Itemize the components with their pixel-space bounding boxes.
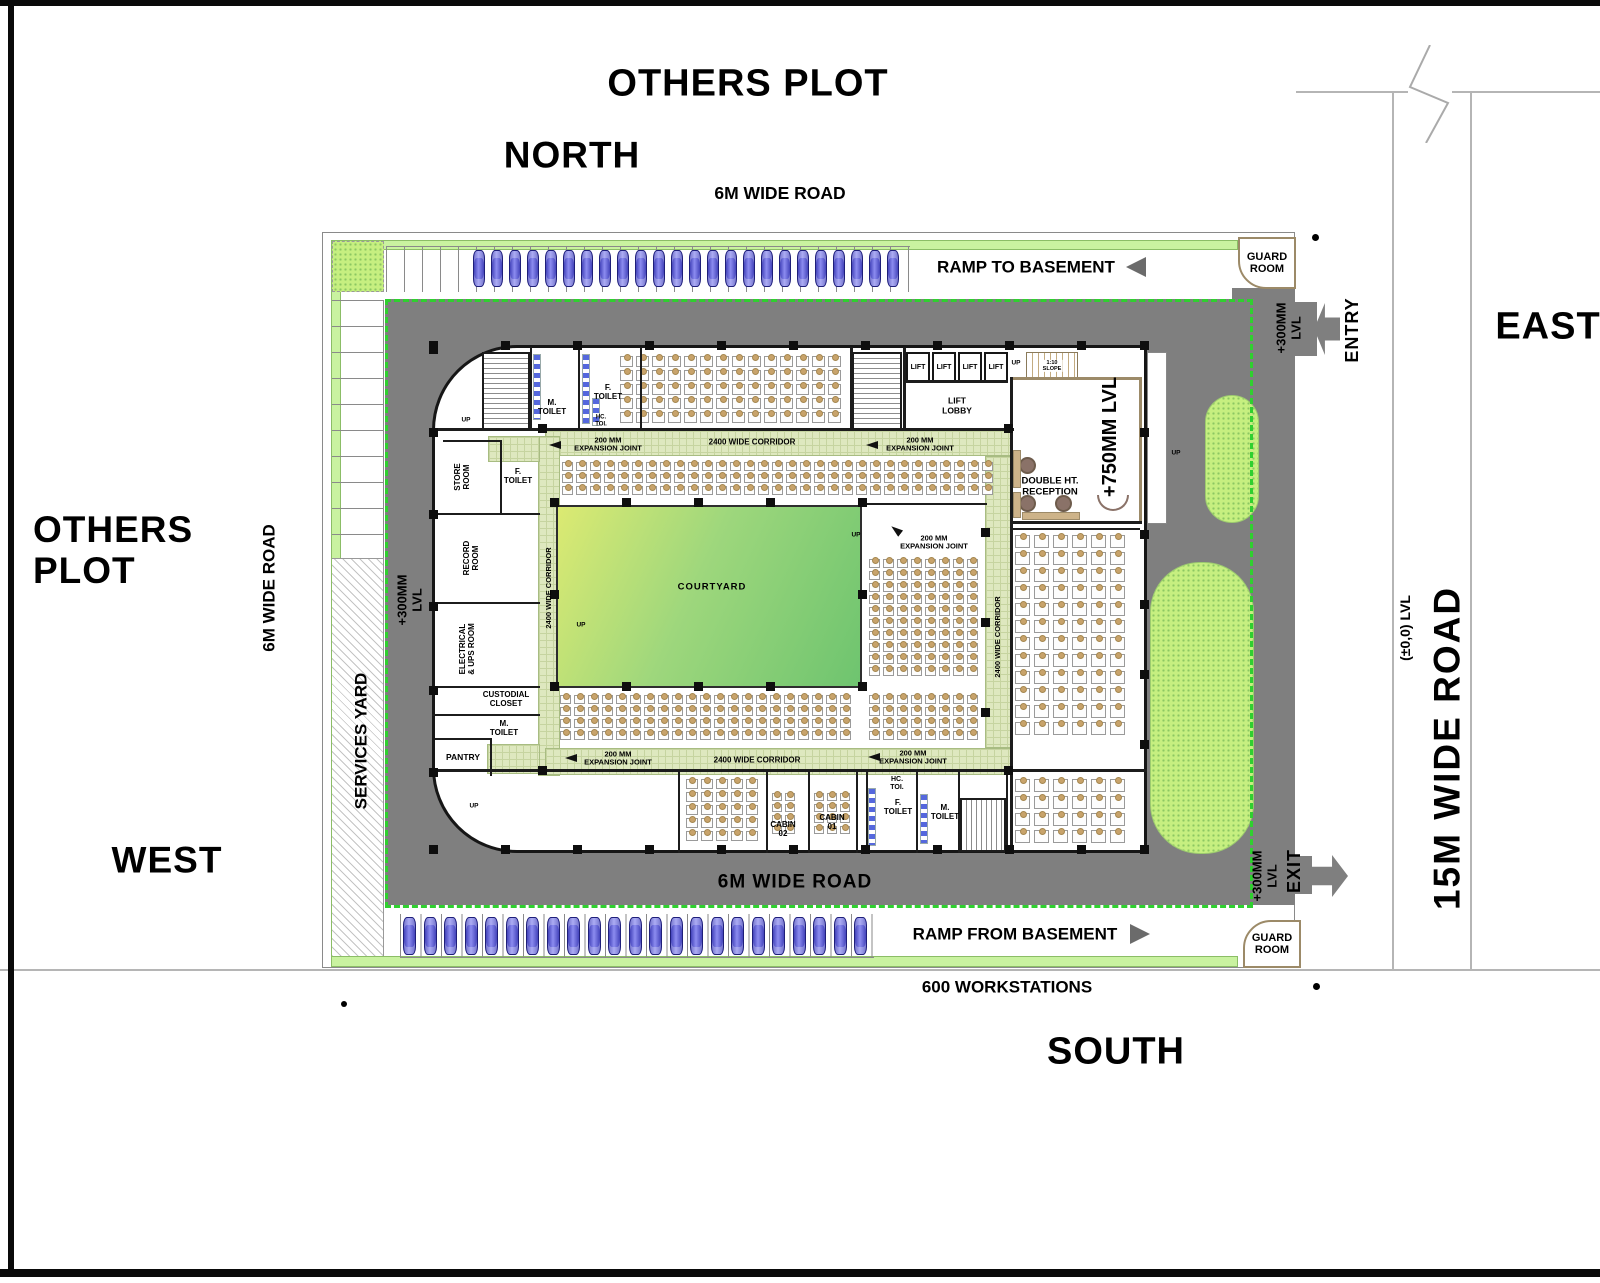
workstation-desk bbox=[636, 370, 649, 381]
workstation-desk bbox=[940, 486, 951, 495]
workstation-desk bbox=[731, 805, 743, 815]
workstation-desk bbox=[925, 667, 936, 676]
workstation-desk bbox=[870, 462, 881, 471]
column bbox=[861, 341, 870, 350]
workstation-desk bbox=[746, 792, 758, 802]
workstation-desk bbox=[883, 695, 894, 704]
workstation-desk bbox=[730, 462, 741, 471]
workstation-desk bbox=[731, 831, 743, 841]
expansion-joint-label-2: 200 MMEXPANSION JOINT bbox=[886, 437, 954, 454]
workstation-zone bbox=[1015, 776, 1143, 850]
workstation-desk bbox=[883, 631, 894, 640]
workstation-desk bbox=[953, 559, 964, 568]
staircase-core bbox=[852, 352, 902, 430]
workstation-desk bbox=[939, 667, 950, 676]
workstation-desk bbox=[939, 571, 950, 580]
workstation-desk bbox=[652, 356, 665, 367]
workstation-desk bbox=[967, 655, 978, 664]
workstation-desk bbox=[1091, 671, 1106, 684]
workstation-desk bbox=[672, 719, 683, 728]
parked-car bbox=[473, 250, 485, 287]
frame-top bbox=[0, 0, 1600, 6]
workstation-desk bbox=[686, 719, 697, 728]
plot-marker-dot-se bbox=[1313, 983, 1320, 990]
interior-wall bbox=[530, 347, 532, 429]
interior-wall bbox=[435, 738, 492, 740]
reception-label: DOUBLE HT.RECEPTION bbox=[1022, 476, 1079, 497]
workstation-desk bbox=[1053, 796, 1068, 809]
workstation-desk bbox=[658, 731, 669, 740]
workstation-desk bbox=[1015, 671, 1030, 684]
workstation-desk bbox=[674, 474, 685, 483]
workstation-desk bbox=[668, 370, 681, 381]
hc-toilet-north-label: HC.TOI. bbox=[595, 414, 607, 427]
workstation-desk bbox=[1072, 569, 1087, 582]
workstation-desk bbox=[968, 474, 979, 483]
f-toilet-south-label: F.TOILET bbox=[884, 799, 912, 817]
workstation-desk bbox=[742, 707, 753, 716]
workstation-desk bbox=[1053, 586, 1068, 599]
workstation-desk bbox=[953, 731, 964, 740]
workstation-desk bbox=[1110, 830, 1125, 843]
workstation-desk bbox=[716, 384, 729, 395]
workstation-desk bbox=[1110, 671, 1125, 684]
workstation-desk bbox=[869, 707, 880, 716]
workstation-desk bbox=[939, 731, 950, 740]
workstation-desk bbox=[800, 486, 811, 495]
workstation-desk bbox=[630, 731, 641, 740]
workstation-desk bbox=[780, 398, 793, 409]
column bbox=[550, 682, 559, 691]
up-mark-courtyard-east: UP bbox=[851, 531, 860, 538]
workstation-desk bbox=[686, 707, 697, 716]
workstation-desk bbox=[856, 486, 867, 495]
workstation-desk bbox=[684, 384, 697, 395]
workstation-desk bbox=[939, 719, 950, 728]
workstation-desk bbox=[636, 412, 649, 423]
workstation-desk bbox=[604, 474, 615, 483]
workstation-desk bbox=[814, 486, 825, 495]
workstation-desk bbox=[756, 731, 767, 740]
workstation-desk bbox=[1072, 603, 1087, 616]
workstation-desk bbox=[560, 719, 571, 728]
workstation-desk bbox=[714, 695, 725, 704]
workstation-desk bbox=[897, 643, 908, 652]
workstation-desk bbox=[869, 619, 880, 628]
workstation-desk bbox=[953, 571, 964, 580]
workstation-desk bbox=[702, 486, 713, 495]
workstation-desk bbox=[1053, 552, 1068, 565]
workstation-desk bbox=[814, 462, 825, 471]
workstation-desk bbox=[728, 707, 739, 716]
workstation-desk bbox=[731, 792, 743, 802]
column bbox=[1140, 341, 1149, 350]
workstation-desk bbox=[630, 707, 641, 716]
road-top-label: 6M WIDE ROAD bbox=[714, 184, 845, 204]
workstation-desk bbox=[764, 384, 777, 395]
workstation-desk bbox=[1091, 552, 1106, 565]
reception-wall-right bbox=[1139, 377, 1142, 524]
parked-car bbox=[491, 250, 503, 287]
parked-car bbox=[563, 250, 575, 287]
workstation-desk bbox=[897, 667, 908, 676]
ramp-slope-label: 1:10SLOPE bbox=[1042, 360, 1063, 372]
lift-3: LIFT bbox=[958, 352, 982, 382]
workstation-desk bbox=[786, 474, 797, 483]
workstation-desk bbox=[869, 607, 880, 616]
workstation-desk bbox=[576, 462, 587, 471]
workstation-desk bbox=[632, 474, 643, 483]
workstation-desk bbox=[742, 719, 753, 728]
workstation-desk bbox=[897, 731, 908, 740]
workstation-desk bbox=[748, 398, 761, 409]
workstation-desk bbox=[898, 462, 909, 471]
workstation-desk bbox=[1053, 671, 1068, 684]
workstation-desk bbox=[746, 818, 758, 828]
workstation-desk bbox=[700, 412, 713, 423]
workstation-desk bbox=[925, 571, 936, 580]
workstation-desk bbox=[883, 595, 894, 604]
interior-wall bbox=[1012, 528, 1140, 530]
compass-west-label: WEST bbox=[112, 839, 223, 880]
parked-car bbox=[743, 250, 755, 287]
workstation-desk bbox=[700, 731, 711, 740]
workstation-desk bbox=[898, 486, 909, 495]
road-bottom-label: 6M WIDE ROAD bbox=[718, 871, 873, 892]
workstation-desk bbox=[618, 486, 629, 495]
parked-car bbox=[689, 250, 701, 287]
workstation-desk bbox=[1072, 552, 1087, 565]
workstation-desk bbox=[1034, 552, 1049, 565]
parked-car bbox=[887, 250, 899, 287]
workstation-desk bbox=[1015, 705, 1030, 718]
workstation-desk bbox=[784, 731, 795, 740]
parked-car bbox=[649, 917, 662, 955]
column bbox=[1004, 424, 1013, 433]
others-plot-top-label: OTHERS PLOT bbox=[607, 63, 888, 106]
workstation-desk bbox=[702, 462, 713, 471]
workstation-desk bbox=[770, 695, 781, 704]
corridor-right-label: 2400 WIDE CORRIDOR bbox=[994, 596, 1002, 677]
workstation-desk bbox=[700, 370, 713, 381]
workstation-desk bbox=[772, 804, 782, 812]
electrical-ups-room-label: ELECTRICAL& UPS ROOM bbox=[459, 623, 477, 675]
workstation-desk bbox=[926, 474, 937, 483]
workstation-desk bbox=[939, 643, 950, 652]
workstation-desk bbox=[780, 384, 793, 395]
column bbox=[1140, 428, 1149, 437]
workstation-desk bbox=[911, 731, 922, 740]
workstation-desk bbox=[1091, 586, 1106, 599]
workstation-desk bbox=[826, 707, 837, 716]
workstation-desk bbox=[911, 607, 922, 616]
workstation-desk bbox=[1034, 603, 1049, 616]
workstation-desk bbox=[616, 707, 627, 716]
workstation-desk bbox=[770, 719, 781, 728]
workstation-desk bbox=[968, 486, 979, 495]
workstation-desk bbox=[1072, 637, 1087, 650]
workstation-desk bbox=[883, 667, 894, 676]
workstation-desk bbox=[982, 462, 993, 471]
workstation-desk bbox=[644, 731, 655, 740]
workstation-desk bbox=[772, 793, 782, 801]
workstation-desk bbox=[1091, 813, 1106, 826]
workstation-desk bbox=[883, 731, 894, 740]
parked-car bbox=[711, 917, 724, 955]
parked-car bbox=[761, 250, 773, 287]
workstation-desk bbox=[742, 731, 753, 740]
workstation-desk bbox=[1053, 569, 1068, 582]
workstation-desk bbox=[897, 707, 908, 716]
workstation-desk bbox=[967, 619, 978, 628]
workstation-desk bbox=[731, 818, 743, 828]
workstation-desk bbox=[590, 474, 601, 483]
workstation-desk bbox=[1110, 654, 1125, 667]
workstation-desk bbox=[758, 462, 769, 471]
workstation-desk bbox=[1015, 688, 1030, 701]
parked-car bbox=[617, 250, 629, 287]
parked-car bbox=[485, 917, 498, 955]
workstation-desk bbox=[602, 707, 613, 716]
workstation-desk bbox=[1015, 637, 1030, 650]
workstation-desk bbox=[911, 583, 922, 592]
cabin-02-label: CABIN02 bbox=[770, 821, 795, 839]
workstation-desk bbox=[700, 356, 713, 367]
workstation-desk bbox=[744, 486, 755, 495]
workstation-desk bbox=[1072, 779, 1087, 792]
workstation-desk bbox=[869, 655, 880, 664]
workstation-desk bbox=[939, 619, 950, 628]
m-toilet-north-label: M.TOILET bbox=[538, 399, 566, 417]
column bbox=[429, 345, 438, 354]
workstation-desk bbox=[940, 474, 951, 483]
courtyard-label: COURTYARD bbox=[678, 583, 747, 594]
workstation-desk bbox=[827, 804, 837, 812]
lift-1: LIFT bbox=[906, 352, 930, 382]
workstation-desk bbox=[812, 384, 825, 395]
workstation-desk bbox=[897, 607, 908, 616]
workstation-desk bbox=[716, 805, 728, 815]
workstation-desk bbox=[1072, 654, 1087, 667]
workstation-desk bbox=[1034, 688, 1049, 701]
workstation-desk bbox=[1091, 722, 1106, 735]
workstation-desk bbox=[764, 412, 777, 423]
workstation-desk bbox=[684, 370, 697, 381]
workstation-desk bbox=[632, 462, 643, 471]
parked-car bbox=[635, 250, 647, 287]
workstation-desk bbox=[912, 462, 923, 471]
workstation-desk bbox=[686, 818, 698, 828]
guard-room-south-label: GUARDROOM bbox=[1252, 932, 1292, 957]
workstation-desk bbox=[646, 486, 657, 495]
workstation-desk bbox=[812, 707, 823, 716]
workstation-zone bbox=[869, 692, 981, 742]
workstation-desk bbox=[883, 707, 894, 716]
workstation-desk bbox=[1110, 637, 1125, 650]
workstation-desk bbox=[796, 370, 809, 381]
workstation-desk bbox=[576, 474, 587, 483]
parked-car bbox=[869, 250, 881, 287]
workstation-desk bbox=[1072, 705, 1087, 718]
staircase-southeast bbox=[960, 798, 1006, 852]
pantry-label: PANTRY bbox=[446, 753, 480, 763]
column bbox=[429, 428, 438, 437]
workstation-desk bbox=[840, 731, 851, 740]
workstation-desk bbox=[588, 719, 599, 728]
workstation-desk bbox=[912, 474, 923, 483]
workstation-desk bbox=[701, 779, 713, 789]
workstation-desk bbox=[982, 474, 993, 483]
lift-4: LIFT bbox=[984, 352, 1008, 382]
workstation-desk bbox=[967, 695, 978, 704]
workstation-desk bbox=[758, 474, 769, 483]
workstation-desk bbox=[912, 486, 923, 495]
expansion-joint-label-4: 200 MMEXPANSION JOINT bbox=[879, 750, 947, 767]
workstation-desk bbox=[982, 486, 993, 495]
workstation-desk bbox=[967, 607, 978, 616]
workstation-desk bbox=[756, 707, 767, 716]
plot-marker-dot-ne bbox=[1312, 234, 1319, 241]
workstation-desk bbox=[732, 412, 745, 423]
interior-wall bbox=[500, 440, 502, 515]
reception-planter-2 bbox=[1013, 492, 1021, 518]
workstation-desk bbox=[748, 384, 761, 395]
workstation-desk bbox=[616, 695, 627, 704]
parked-car bbox=[834, 917, 847, 955]
workstation-desk bbox=[772, 486, 783, 495]
workstation-desk bbox=[953, 655, 964, 664]
level-300-se-label: +300MMLVL bbox=[1250, 851, 1279, 902]
workstation-desk bbox=[842, 474, 853, 483]
parked-car bbox=[815, 250, 827, 287]
workstation-desk bbox=[1034, 830, 1049, 843]
column bbox=[858, 682, 867, 691]
workstation-desk bbox=[798, 695, 809, 704]
workstation-desk bbox=[1091, 569, 1106, 582]
workstation-desk bbox=[616, 731, 627, 740]
workstation-desk bbox=[939, 707, 950, 716]
workstation-desk bbox=[884, 486, 895, 495]
column bbox=[717, 845, 726, 854]
workstation-desk bbox=[620, 370, 633, 381]
workstation-desk bbox=[828, 356, 841, 367]
column bbox=[1140, 600, 1149, 609]
parked-car bbox=[444, 917, 457, 955]
workstation-desk bbox=[897, 631, 908, 640]
reception-table-1 bbox=[1019, 457, 1036, 474]
workstation-desk bbox=[911, 667, 922, 676]
workstation-desk bbox=[630, 719, 641, 728]
workstation-desk bbox=[770, 707, 781, 716]
workstation-desk bbox=[911, 643, 922, 652]
workstation-desk bbox=[967, 643, 978, 652]
workstation-desk bbox=[800, 462, 811, 471]
workstation-desk bbox=[897, 571, 908, 580]
workstation-desk bbox=[812, 356, 825, 367]
up-mark-courtyard-west: UP bbox=[576, 621, 585, 628]
workstation-desk bbox=[700, 695, 711, 704]
road-15m-label: 15M WIDE ROAD bbox=[1426, 586, 1467, 910]
workstation-desk bbox=[686, 792, 698, 802]
workstation-desk bbox=[953, 619, 964, 628]
workstation-desk bbox=[953, 607, 964, 616]
workstation-desk bbox=[898, 474, 909, 483]
workstation-desk bbox=[756, 719, 767, 728]
workstation-desk bbox=[620, 412, 633, 423]
workstation-desk bbox=[686, 805, 698, 815]
parked-car bbox=[731, 917, 744, 955]
interior-wall bbox=[640, 347, 642, 429]
south-plot-line bbox=[0, 969, 1600, 971]
workstation-zone bbox=[869, 556, 983, 682]
workstation-desk bbox=[716, 370, 729, 381]
workstation-desk bbox=[1072, 586, 1087, 599]
workstation-desk bbox=[939, 607, 950, 616]
workstation-desk bbox=[826, 695, 837, 704]
workstation-desk bbox=[897, 655, 908, 664]
workstation-desk bbox=[884, 462, 895, 471]
record-room-label: RECORDROOM bbox=[463, 541, 481, 576]
workstation-desk bbox=[780, 370, 793, 381]
workstation-desk bbox=[701, 831, 713, 841]
parked-car bbox=[670, 917, 683, 955]
custodial-closet-label: CUSTODIALCLOSET bbox=[483, 691, 530, 709]
workstation-desk bbox=[562, 462, 573, 471]
interior-wall bbox=[432, 602, 540, 604]
workstation-desk bbox=[826, 731, 837, 740]
compass-east-label: EAST bbox=[1495, 306, 1600, 349]
exit-label: EXIT bbox=[1284, 849, 1304, 893]
workstation-desk bbox=[652, 398, 665, 409]
workstation-desk bbox=[828, 384, 841, 395]
workstation-desk bbox=[764, 398, 777, 409]
parked-car bbox=[772, 917, 785, 955]
workstation-desk bbox=[798, 731, 809, 740]
workstation-desk bbox=[590, 462, 601, 471]
column bbox=[766, 682, 775, 691]
column bbox=[1004, 766, 1013, 775]
workstation-desk bbox=[785, 793, 795, 801]
workstation-desk bbox=[732, 370, 745, 381]
workstation-desk bbox=[840, 793, 850, 801]
workstation-desk bbox=[911, 559, 922, 568]
workstation-desk bbox=[828, 474, 839, 483]
workstation-desk bbox=[1072, 620, 1087, 633]
workstation-desk bbox=[812, 412, 825, 423]
workstation-desk bbox=[869, 631, 880, 640]
workstation-desk bbox=[814, 804, 824, 812]
workstation-desk bbox=[925, 655, 936, 664]
workstation-desk bbox=[716, 818, 728, 828]
workstation-desk bbox=[780, 356, 793, 367]
guard-room-north: GUARDROOM bbox=[1238, 237, 1296, 289]
workstation-desk bbox=[672, 731, 683, 740]
parked-car bbox=[509, 250, 521, 287]
workstation-desk bbox=[967, 667, 978, 676]
column bbox=[1077, 845, 1086, 854]
workstation-desk bbox=[658, 707, 669, 716]
workstation-desk bbox=[883, 583, 894, 592]
road-break-symbol bbox=[1398, 45, 1462, 143]
workstation-desk bbox=[870, 474, 881, 483]
workstation-desk bbox=[840, 719, 851, 728]
workstation-desk bbox=[1091, 688, 1106, 701]
workstation-desk bbox=[714, 719, 725, 728]
m-toilet-west-label: M.TOILET bbox=[490, 720, 518, 738]
up-mark-ramp: UP bbox=[1011, 359, 1020, 366]
workstation-desk bbox=[953, 595, 964, 604]
workstation-desk bbox=[925, 707, 936, 716]
